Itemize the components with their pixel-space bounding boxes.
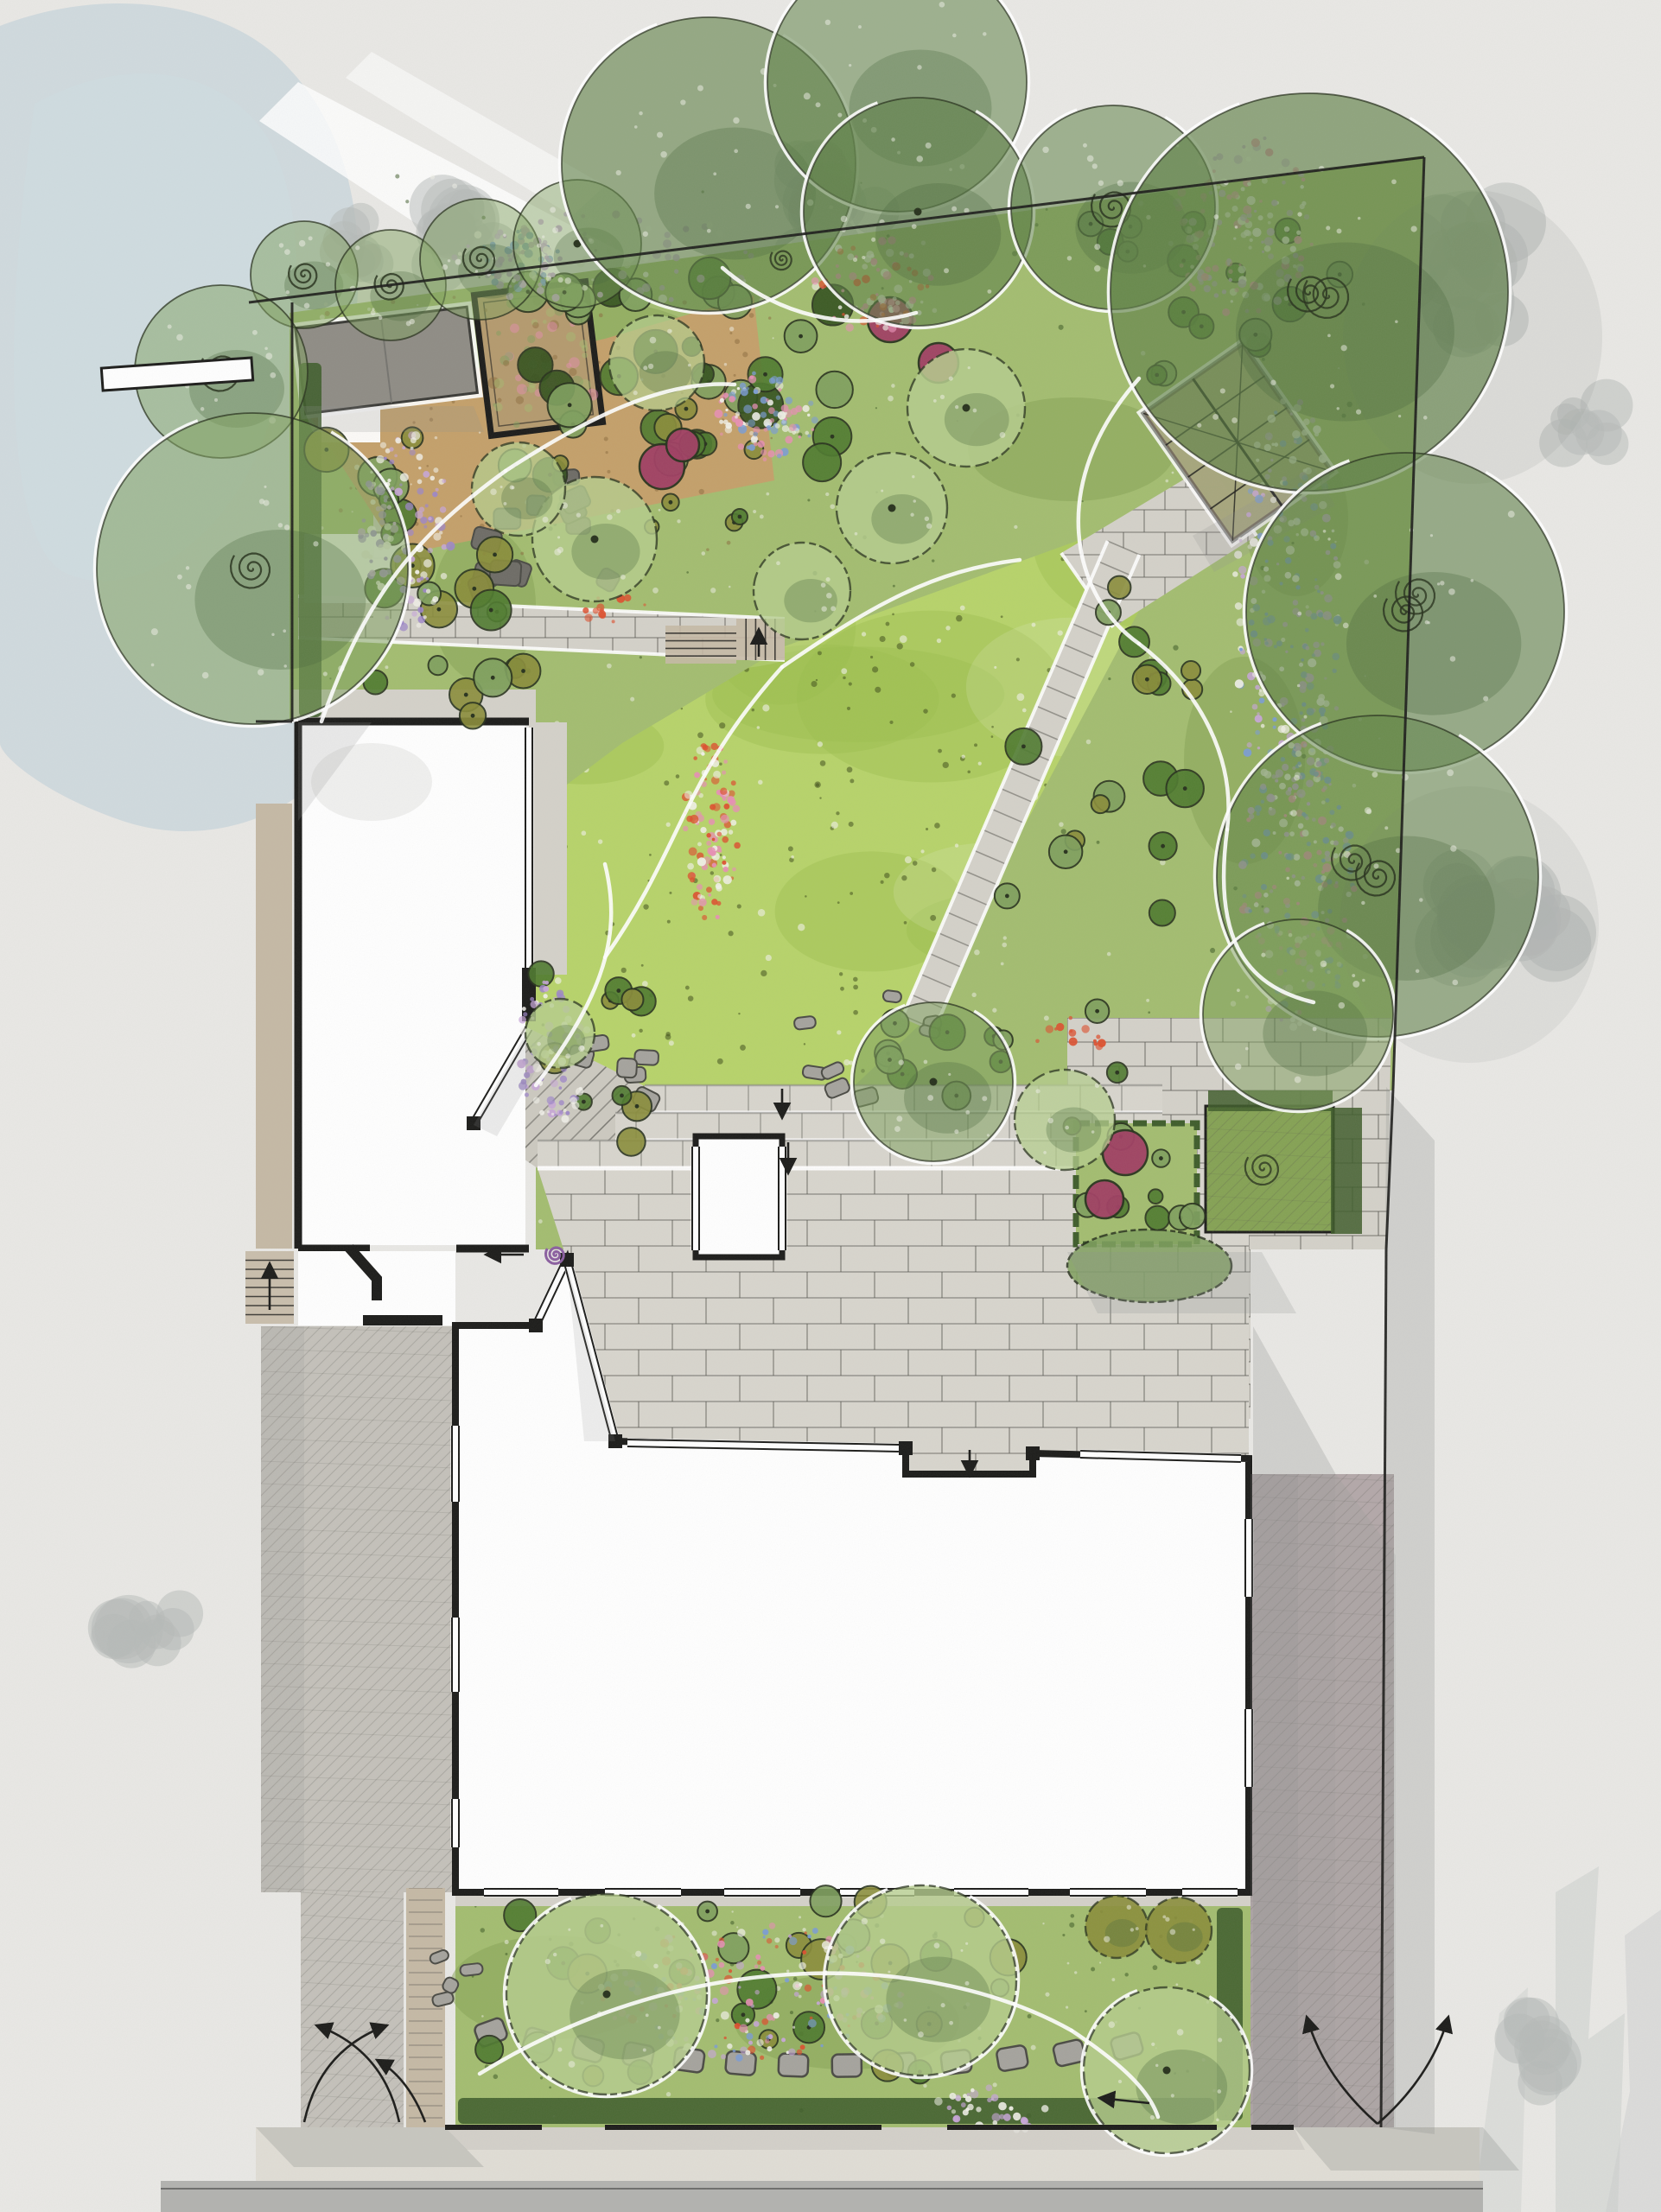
garden-plan-drawing: [0, 0, 1661, 2212]
layer-grain: [0, 0, 1661, 2212]
garden-masterplan: [0, 0, 1661, 2212]
paper-grain: [0, 0, 1661, 2212]
